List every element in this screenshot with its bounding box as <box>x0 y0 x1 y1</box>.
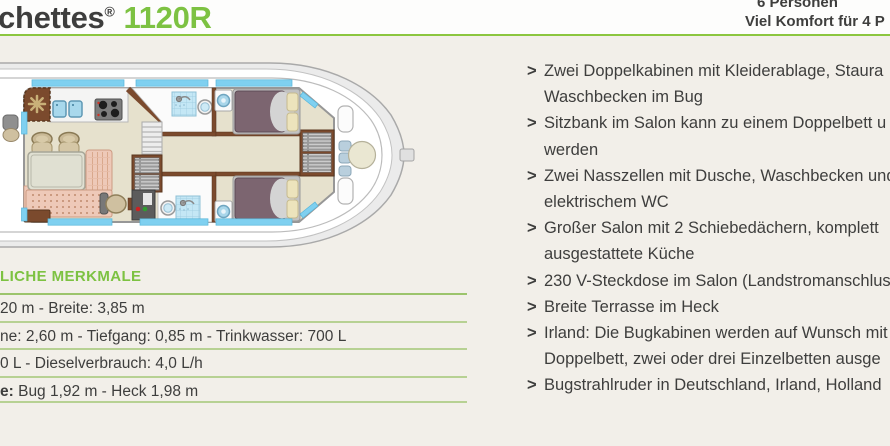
feature-item-continuation: ausgestattete Küche <box>527 241 890 267</box>
feature-item: >Zwei Doppelkabinen mit Kleiderablage, S… <box>527 58 890 84</box>
feature-item: >Großer Salon mit 2 Schiebedächern, komp… <box>527 215 890 241</box>
bullet-icon: > <box>527 372 537 398</box>
boat-floorplan <box>0 58 446 254</box>
feature-item: >Sitzbank im Salon kann zu einem Doppelb… <box>527 110 890 136</box>
cabin-washbasin-top <box>215 90 232 111</box>
salon-table <box>28 152 85 190</box>
bullet-icon: > <box>527 320 537 346</box>
bow-roller <box>400 149 414 161</box>
feature-item-continuation: werden <box>527 137 890 163</box>
capacity-note: 6 Personen Viel Komfort für 4 P <box>745 0 885 31</box>
page-header: chettes®1120R 6 Personen Viel Komfort fü… <box>0 0 890 36</box>
bullet-icon: > <box>527 163 537 189</box>
pillow <box>287 180 298 198</box>
spec-row-clearance: ne: 2,60 m - Tiefgang: 0,85 m - Trinkwas… <box>0 321 467 349</box>
pillow <box>287 113 298 131</box>
deck-table <box>349 142 376 169</box>
bathroom-aft-bottom <box>158 176 216 222</box>
spec-table: LICHE MERKMALE 20 m - Breite: 3,85 m ne:… <box>0 268 467 403</box>
spec-row-headroom: e: Bug 1,92 m - Heck 1,98 m <box>0 376 467 404</box>
double-bed-bottom <box>233 176 300 221</box>
feature-item: >230 V-Steckdose im Salon (Landstromansc… <box>527 268 890 294</box>
feature-list: >Zwei Doppelkabinen mit Kleiderablage, S… <box>527 58 890 399</box>
feature-item-continuation: elektrischem WC <box>527 189 890 215</box>
brochure-page: { "header": { "title_prefix": "chettes",… <box>0 0 890 446</box>
electrical-panel <box>132 190 155 220</box>
wardrobe <box>300 130 334 176</box>
bullet-icon: > <box>527 58 537 84</box>
deck-seat <box>339 166 351 176</box>
capacity-line1: 6 Personen <box>757 0 885 12</box>
pillow <box>287 93 298 111</box>
bullet-icon: > <box>527 268 537 294</box>
spec-row-fuel: 0 L - Dieselverbrauch: 4,0 L/h <box>0 348 467 376</box>
feature-item: >Breite Terrasse im Heck <box>527 294 890 320</box>
feature-item-continuation: Doppelbett, zwei oder drei Einzelbetten … <box>527 346 890 372</box>
helm-seat <box>3 115 19 142</box>
pillow <box>287 200 298 218</box>
swivel-chair <box>100 193 126 214</box>
title-prefix: chettes <box>0 0 104 35</box>
page-title: chettes®1120R <box>0 0 212 36</box>
side-cabinet <box>24 210 50 222</box>
bullet-icon: > <box>527 215 537 241</box>
engine-louver <box>132 155 162 192</box>
feature-item: >Zwei Nasszellen mit Dusche, Waschbecken… <box>527 163 890 189</box>
title-model: 1120R <box>123 0 211 35</box>
steering-wheel-icon <box>29 96 45 112</box>
feature-item: >Irland: Die Bugkabinen werden auf Wunsc… <box>527 320 890 346</box>
feature-item-continuation: Waschbecken im Bug <box>527 84 890 110</box>
spec-heading: LICHE MERKMALE <box>0 268 467 293</box>
stove-icon <box>95 99 122 120</box>
bullet-icon: > <box>527 294 537 320</box>
feature-item: >Bugstrahlruder in Deutschland, Irland, … <box>527 372 890 398</box>
bow-locker <box>338 178 353 204</box>
bow-locker <box>338 106 353 132</box>
companionway-stairs <box>142 122 162 154</box>
double-bed-top <box>233 89 300 134</box>
spec-row-dimensions: 20 m - Breite: 3,85 m <box>0 293 467 321</box>
bullet-icon: > <box>527 110 537 136</box>
registered-mark: ® <box>104 4 114 20</box>
capacity-line2: Viel Komfort für 4 P <box>745 12 885 31</box>
